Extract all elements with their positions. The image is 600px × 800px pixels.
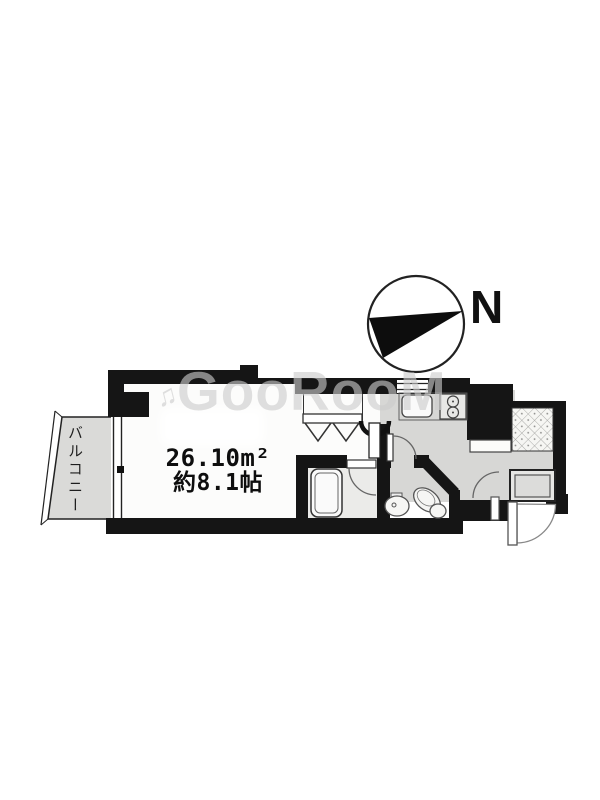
floor-plan-page: ♫ GooRooM 26.10m² 約8.1帖 バルコニー N: [0, 0, 600, 800]
compass-north-label: N: [470, 280, 504, 334]
room-area-tatami: 約8.1帖: [124, 471, 312, 496]
washbasin-icon: [385, 496, 409, 516]
floor-plan-drawing: [0, 0, 600, 800]
entrance-door-arc: [517, 504, 556, 543]
balcony-window: [111, 417, 124, 519]
kitchen-sink-icon: [402, 395, 432, 417]
toilet-tank: [430, 504, 446, 518]
room-area-m2: 26.10m²: [124, 446, 312, 471]
shoe-cabinet: [470, 440, 511, 452]
watermark-glow: [160, 408, 264, 445]
hall-door-leaf: [491, 497, 499, 520]
entrance-door-leaf: [508, 502, 517, 545]
entrance-tile: [512, 408, 553, 451]
compass-icon: [368, 276, 464, 372]
pipe-shaft: [467, 384, 513, 440]
closet-shelf: [303, 414, 362, 423]
bathroom-door-leaf: [347, 460, 376, 468]
room-area-label: 26.10m² 約8.1帖: [124, 446, 312, 496]
kitchen-window: [397, 380, 428, 393]
balcony-label: バルコニー: [64, 425, 85, 529]
toilet-door-leaf: [387, 434, 393, 461]
